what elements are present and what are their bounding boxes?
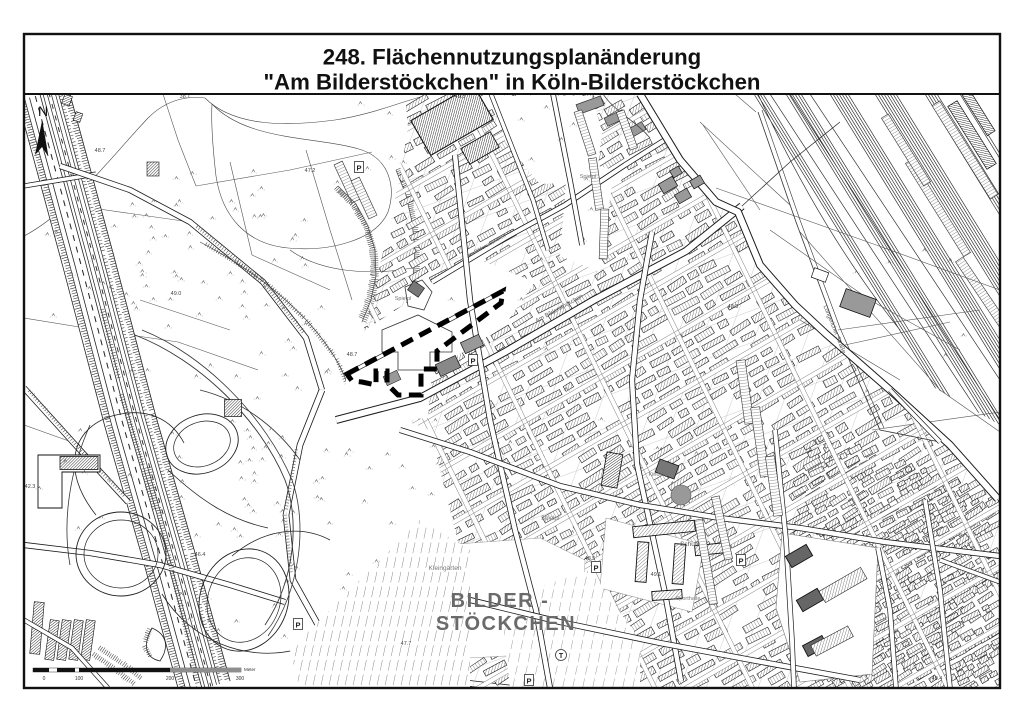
svg-text:P: P [470, 357, 475, 366]
svg-text:49.1: 49.1 [651, 572, 662, 578]
svg-text:Spielpl: Spielpl [580, 174, 597, 180]
svg-text:47.7: 47.7 [401, 641, 412, 647]
svg-text:Sporthalle: Sporthalle [676, 596, 701, 602]
svg-text:300: 300 [236, 676, 245, 682]
svg-text:BILDER -: BILDER - [451, 590, 550, 612]
svg-text:STÖCKCHEN: STÖCKCHEN [436, 612, 576, 635]
svg-text:100: 100 [75, 676, 84, 682]
svg-text:"Am Bilderstöckchen" in Köln-B: "Am Bilderstöckchen" in Köln-Bilderstöck… [264, 70, 761, 95]
svg-text:P: P [526, 677, 531, 686]
svg-text:P: P [295, 621, 300, 630]
svg-text:48.7: 48.7 [95, 148, 106, 154]
svg-text:Kinderg: Kinderg [649, 472, 668, 478]
svg-text:Meter: Meter [244, 667, 256, 672]
svg-text:P: P [593, 564, 598, 573]
svg-text:T: T [559, 653, 564, 660]
svg-text:49.0: 49.0 [171, 291, 182, 297]
svg-text:42.3: 42.3 [25, 484, 36, 490]
svg-text:P: P [738, 557, 743, 566]
svg-text:200: 200 [166, 676, 175, 682]
svg-text:48.5: 48.5 [585, 556, 596, 562]
svg-text:46.4: 46.4 [195, 552, 206, 558]
svg-text:Schule: Schule [680, 541, 700, 548]
svg-text:49.8: 49.8 [728, 304, 739, 310]
svg-text:48.7: 48.7 [347, 352, 358, 358]
svg-text:47.2: 47.2 [305, 168, 316, 174]
svg-text:248. Flächennutzungsplanänderu: 248. Flächennutzungsplanänderung [323, 45, 701, 70]
svg-text:0: 0 [43, 676, 46, 682]
svg-text:N: N [38, 103, 48, 119]
svg-text:Spielpl: Spielpl [395, 296, 412, 302]
svg-text:P: P [356, 164, 361, 173]
svg-text:49.4: 49.4 [932, 676, 943, 682]
svg-text:Spielpl: Spielpl [541, 516, 559, 522]
svg-text:Kleingärten: Kleingärten [429, 565, 462, 572]
